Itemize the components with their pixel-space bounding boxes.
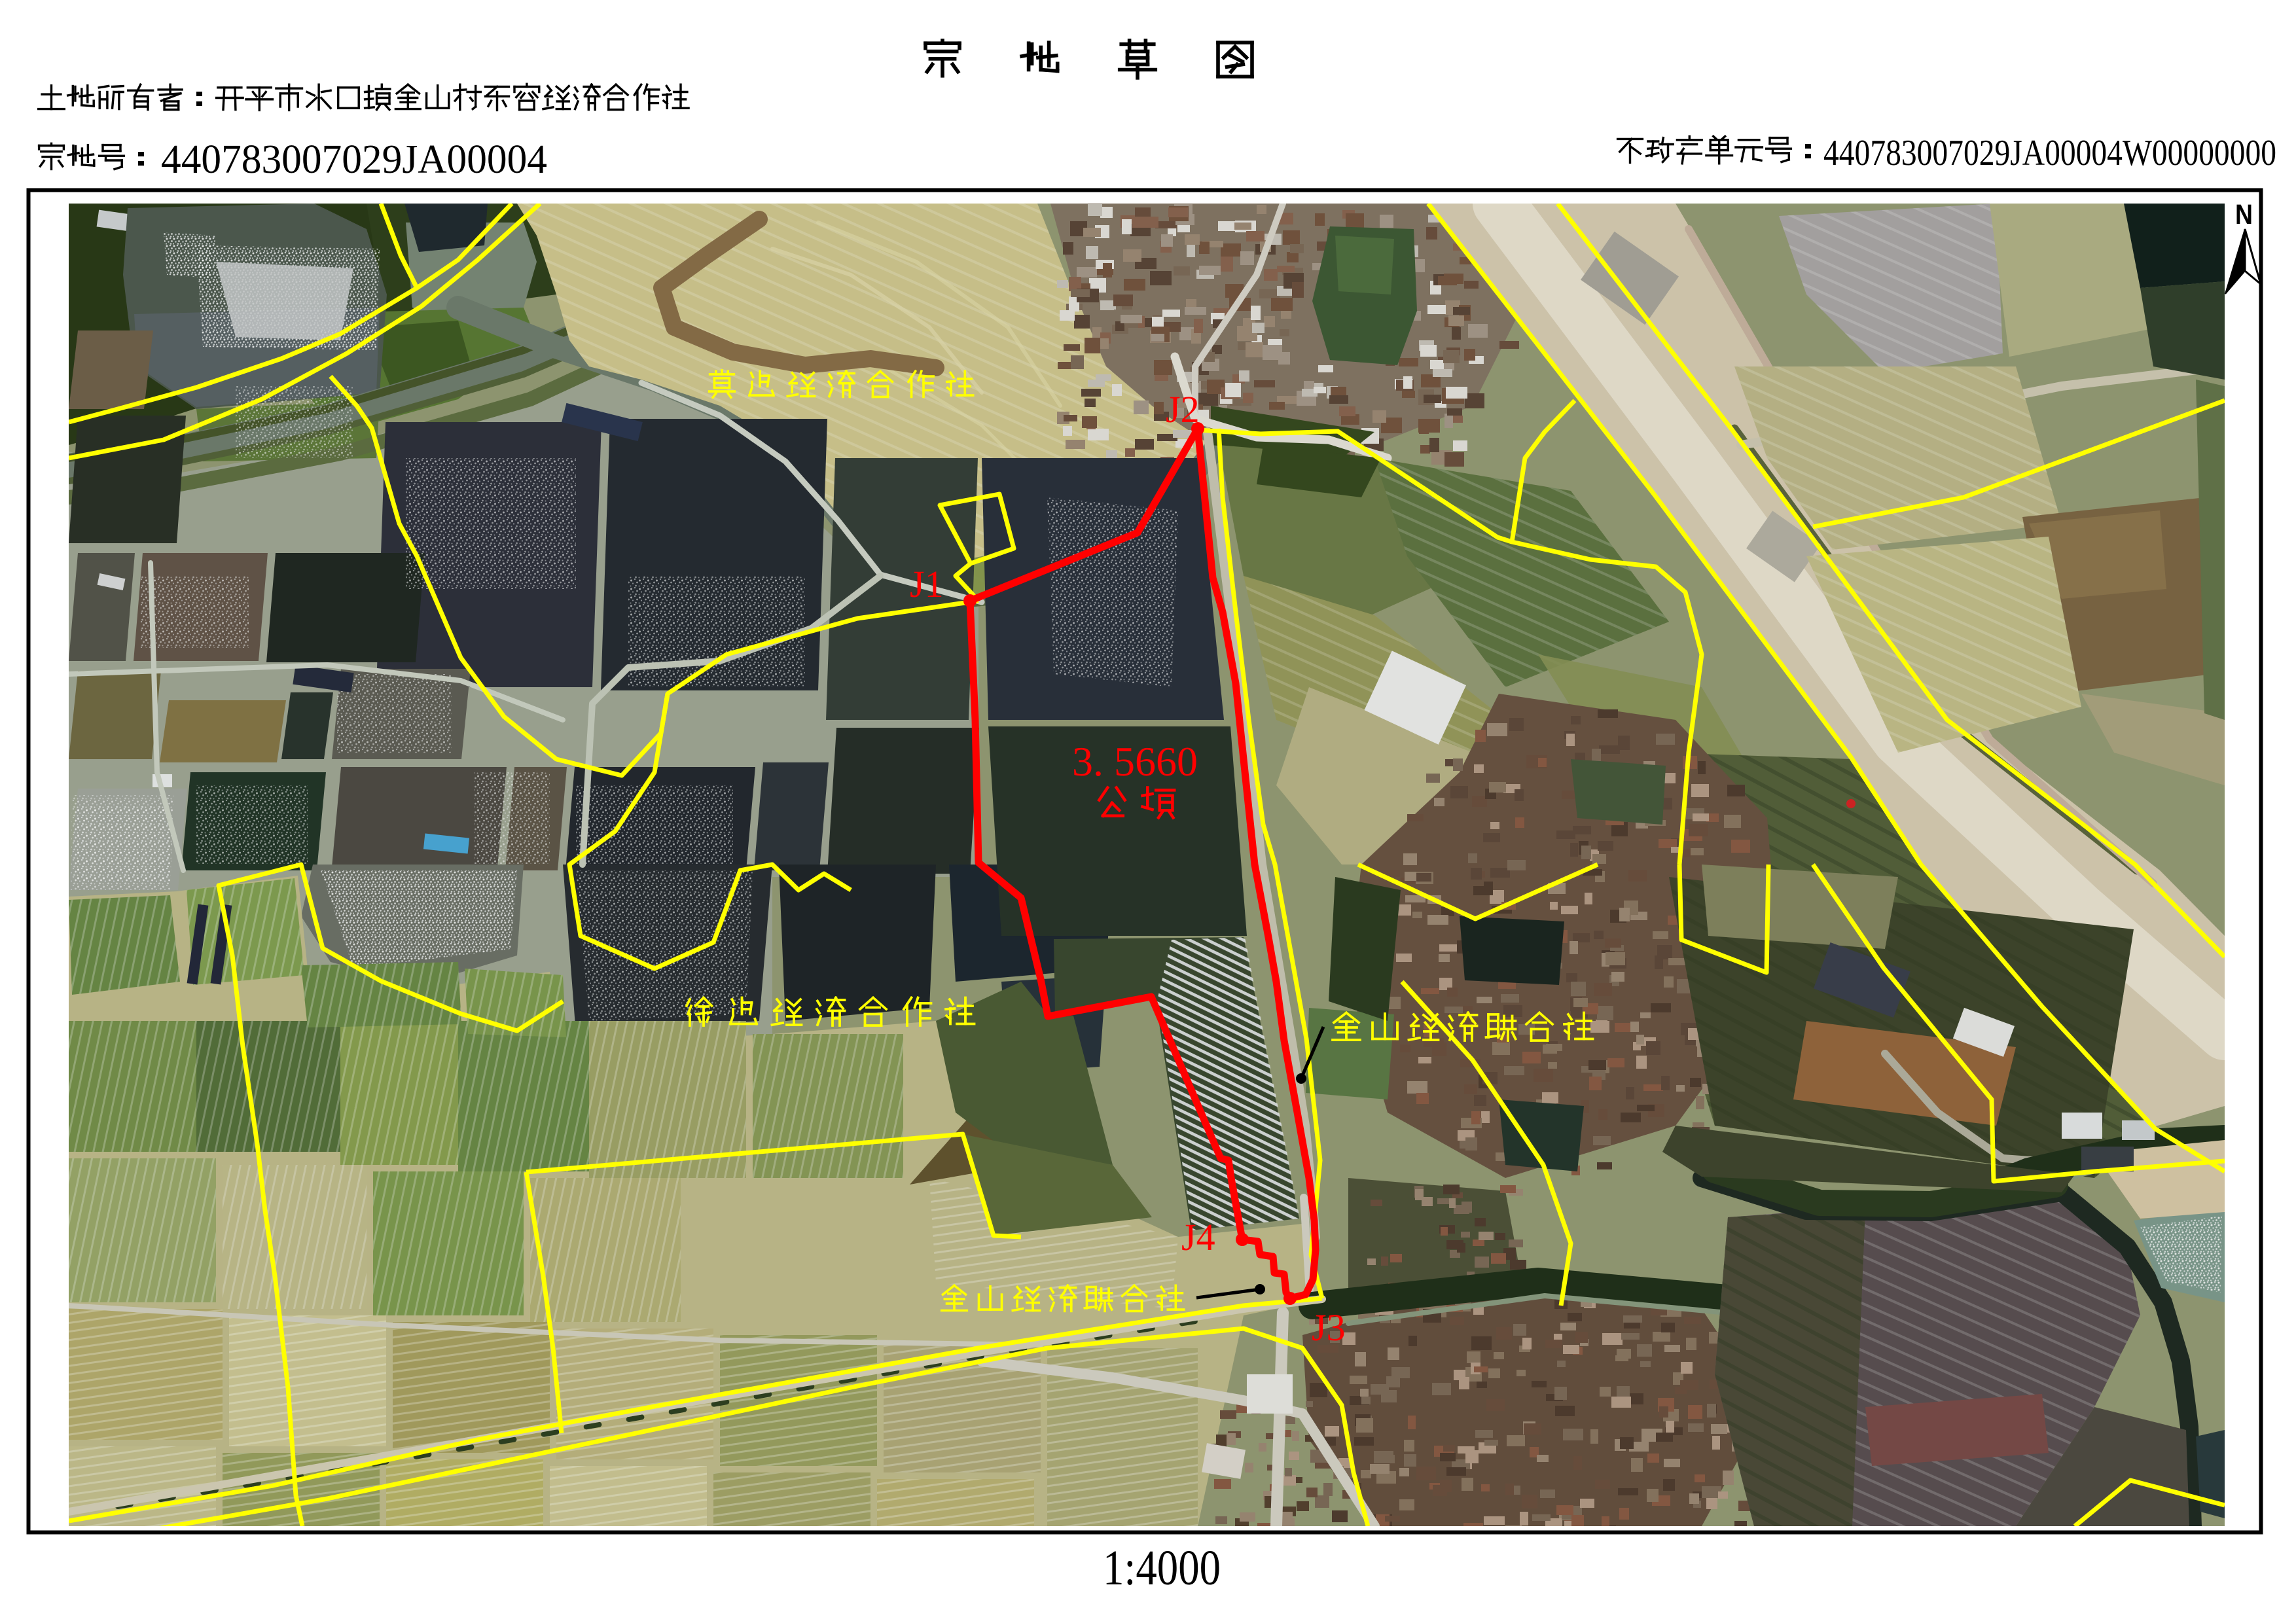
svg-text:440783007029JA00004: 440783007029JA00004 [161, 137, 547, 182]
svg-text:J1: J1 [910, 563, 944, 605]
svg-text:1:4000: 1:4000 [1103, 1541, 1221, 1596]
svg-text:J3: J3 [1312, 1306, 1346, 1349]
svg-text:J2: J2 [1166, 388, 1200, 431]
svg-text:3. 5660: 3. 5660 [1072, 738, 1198, 785]
svg-text:440783007029JA00004W00000000: 440783007029JA00004W00000000 [1823, 133, 2276, 173]
svg-text:J4: J4 [1181, 1216, 1215, 1258]
svg-text:N: N [2235, 199, 2253, 230]
